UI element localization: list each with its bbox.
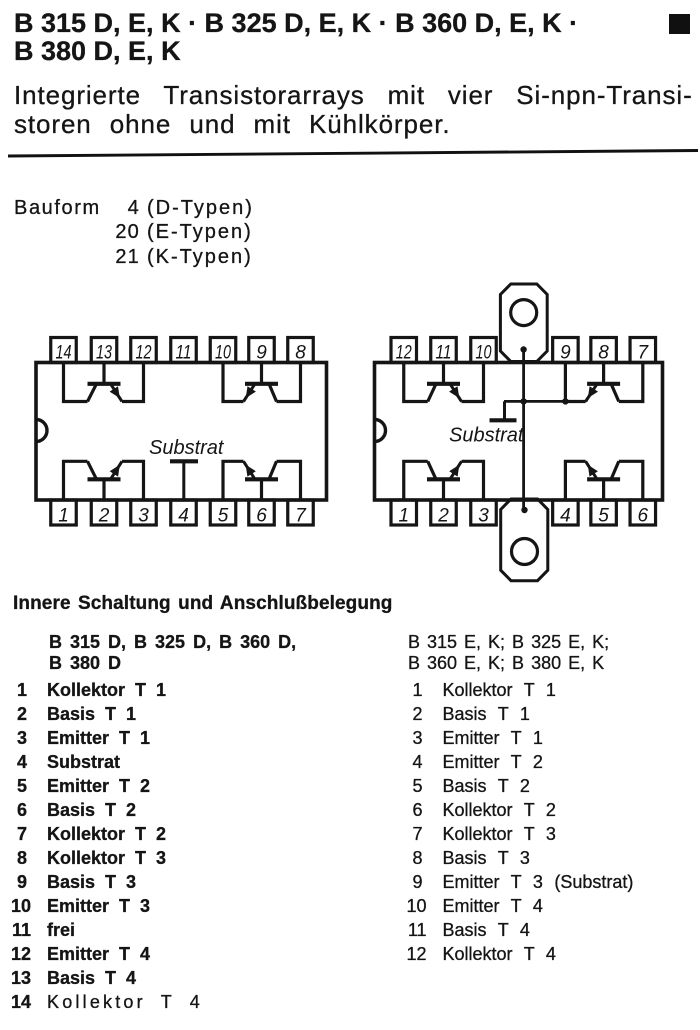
svg-text:10: 10 (215, 343, 231, 364)
svg-text:5: 5 (598, 506, 609, 527)
svg-text:8: 8 (598, 343, 609, 364)
svg-text:4: 4 (178, 506, 189, 527)
svg-text:5: 5 (218, 506, 229, 527)
svg-text:11: 11 (176, 343, 192, 364)
svg-text:Substrat: Substrat (449, 425, 525, 447)
svg-text:13: 13 (96, 343, 112, 364)
svg-text:Substrat: Substrat (149, 437, 225, 459)
svg-text:9: 9 (256, 343, 267, 364)
svg-text:1: 1 (58, 506, 69, 527)
svg-text:6: 6 (256, 506, 267, 527)
svg-text:6: 6 (638, 506, 649, 527)
svg-text:14: 14 (56, 343, 72, 364)
svg-text:7: 7 (638, 343, 650, 364)
svg-text:12: 12 (396, 343, 412, 364)
svg-text:9: 9 (560, 343, 571, 364)
svg-text:1: 1 (399, 506, 410, 527)
svg-text:2: 2 (437, 506, 449, 527)
svg-text:11: 11 (436, 343, 452, 364)
svg-text:7: 7 (295, 506, 307, 527)
svg-text:3: 3 (138, 506, 149, 527)
svg-text:4: 4 (560, 506, 571, 527)
svg-text:12: 12 (136, 343, 152, 364)
svg-text:8: 8 (295, 343, 306, 364)
svg-text:3: 3 (478, 506, 489, 527)
svg-text:2: 2 (98, 506, 110, 527)
svg-text:10: 10 (476, 343, 492, 364)
